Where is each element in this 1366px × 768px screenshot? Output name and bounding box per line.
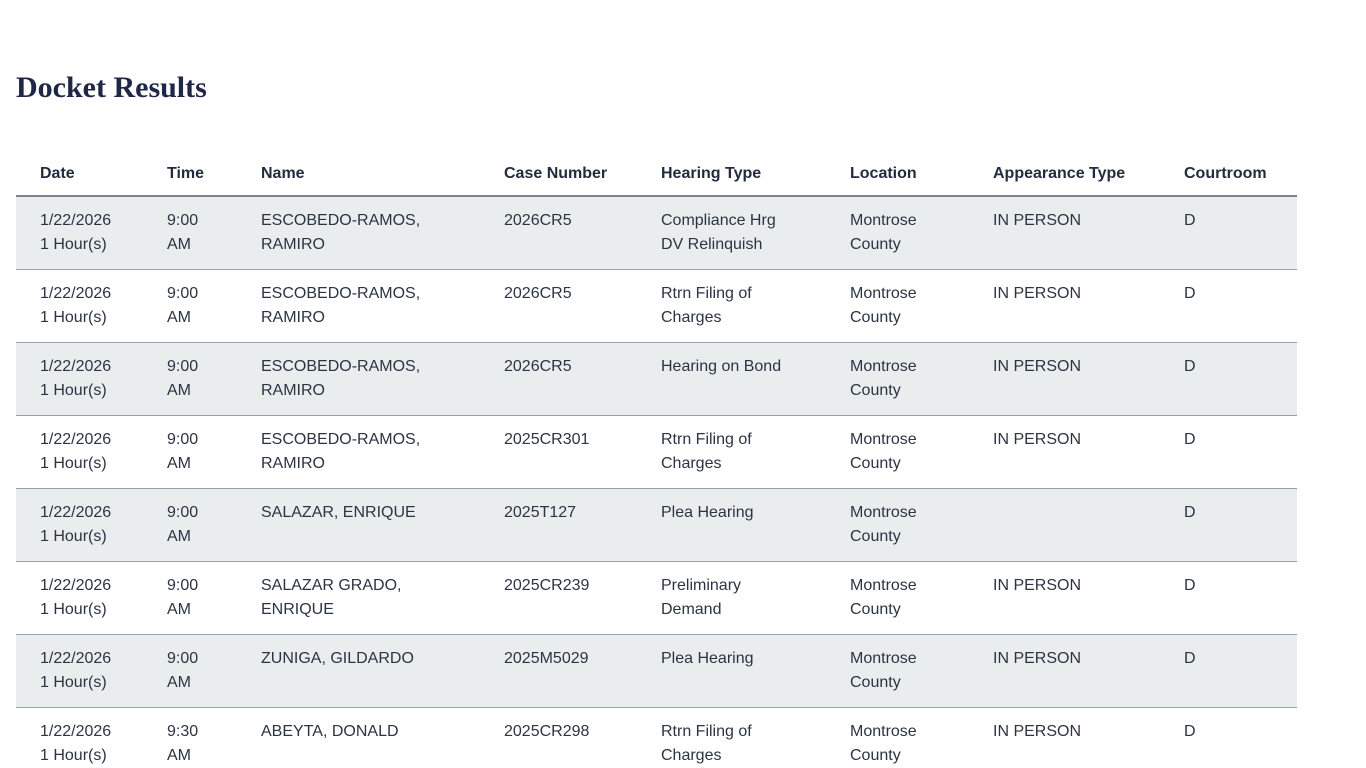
column-header-hearing-type: Hearing Type	[649, 153, 838, 196]
table-row: 1/22/2026 1 Hour(s)9:00 AMSALAZAR GRADO,…	[16, 562, 1297, 635]
cell-name: ESCOBEDO-RAMOS, RAMIRO	[249, 196, 492, 270]
cell-appearance-type: IN PERSON	[981, 708, 1172, 768]
cell-appearance-type: IN PERSON	[981, 416, 1172, 489]
cell-location: Montrose County	[838, 270, 981, 343]
page-container: Docket Results Date Time Name Case Numbe…	[0, 70, 1366, 768]
cell-time: 9:00 AM	[155, 416, 249, 489]
cell-date: 1/22/2026 1 Hour(s)	[16, 416, 155, 489]
cell-hearing-type: Preliminary Demand	[649, 562, 838, 635]
cell-courtroom: D	[1172, 635, 1297, 708]
cell-name: SALAZAR, ENRIQUE	[249, 489, 492, 562]
cell-location: Montrose County	[838, 489, 981, 562]
page-title: Docket Results	[16, 70, 1350, 106]
table-row: 1/22/2026 1 Hour(s)9:00 AMZUNIGA, GILDAR…	[16, 635, 1297, 708]
table-row: 1/22/2026 1 Hour(s)9:00 AMESCOBEDO-RAMOS…	[16, 416, 1297, 489]
cell-time: 9:30 AM	[155, 708, 249, 768]
cell-date: 1/22/2026 1 Hour(s)	[16, 708, 155, 768]
table-row: 1/22/2026 1 Hour(s)9:00 AMESCOBEDO-RAMOS…	[16, 270, 1297, 343]
cell-location: Montrose County	[838, 416, 981, 489]
cell-name: ESCOBEDO-RAMOS, RAMIRO	[249, 343, 492, 416]
column-header-time: Time	[155, 153, 249, 196]
cell-courtroom: D	[1172, 708, 1297, 768]
cell-time: 9:00 AM	[155, 562, 249, 635]
column-header-date: Date	[16, 153, 155, 196]
cell-location: Montrose County	[838, 635, 981, 708]
cell-case-number: 2025CR298	[492, 708, 649, 768]
column-header-appearance-type: Appearance Type	[981, 153, 1172, 196]
table-body: 1/22/2026 1 Hour(s)9:00 AMESCOBEDO-RAMOS…	[16, 196, 1297, 768]
cell-courtroom: D	[1172, 343, 1297, 416]
cell-time: 9:00 AM	[155, 196, 249, 270]
cell-appearance-type: IN PERSON	[981, 196, 1172, 270]
cell-appearance-type: IN PERSON	[981, 562, 1172, 635]
table-header-row: Date Time Name Case Number Hearing Type …	[16, 153, 1297, 196]
cell-date: 1/22/2026 1 Hour(s)	[16, 343, 155, 416]
cell-name: ZUNIGA, GILDARDO	[249, 635, 492, 708]
cell-case-number: 2025CR239	[492, 562, 649, 635]
table-row: 1/22/2026 1 Hour(s)9:00 AMESCOBEDO-RAMOS…	[16, 343, 1297, 416]
cell-appearance-type: IN PERSON	[981, 270, 1172, 343]
cell-case-number: 2026CR5	[492, 343, 649, 416]
cell-date: 1/22/2026 1 Hour(s)	[16, 562, 155, 635]
cell-hearing-type: Plea Hearing	[649, 635, 838, 708]
cell-courtroom: D	[1172, 196, 1297, 270]
cell-time: 9:00 AM	[155, 270, 249, 343]
cell-courtroom: D	[1172, 489, 1297, 562]
column-header-courtroom: Courtroom	[1172, 153, 1297, 196]
column-header-name: Name	[249, 153, 492, 196]
cell-date: 1/22/2026 1 Hour(s)	[16, 635, 155, 708]
cell-appearance-type: IN PERSON	[981, 343, 1172, 416]
cell-appearance-type: IN PERSON	[981, 635, 1172, 708]
table-row: 1/22/2026 1 Hour(s)9:00 AMSALAZAR, ENRIQ…	[16, 489, 1297, 562]
cell-hearing-type: Rtrn Filing of Charges	[649, 270, 838, 343]
cell-date: 1/22/2026 1 Hour(s)	[16, 270, 155, 343]
cell-courtroom: D	[1172, 416, 1297, 489]
cell-location: Montrose County	[838, 562, 981, 635]
table-row: 1/22/2026 1 Hour(s)9:00 AMESCOBEDO-RAMOS…	[16, 196, 1297, 270]
cell-time: 9:00 AM	[155, 489, 249, 562]
cell-hearing-type: Plea Hearing	[649, 489, 838, 562]
cell-time: 9:00 AM	[155, 635, 249, 708]
cell-appearance-type	[981, 489, 1172, 562]
table-row: 1/22/2026 1 Hour(s)9:30 AMABEYTA, DONALD…	[16, 708, 1297, 768]
cell-courtroom: D	[1172, 562, 1297, 635]
cell-hearing-type: Hearing on Bond	[649, 343, 838, 416]
cell-hearing-type: Rtrn Filing of Charges	[649, 416, 838, 489]
column-header-location: Location	[838, 153, 981, 196]
cell-courtroom: D	[1172, 270, 1297, 343]
cell-hearing-type: Compliance Hrg DV Relinquish	[649, 196, 838, 270]
cell-name: ESCOBEDO-RAMOS, RAMIRO	[249, 270, 492, 343]
cell-case-number: 2026CR5	[492, 196, 649, 270]
cell-name: ESCOBEDO-RAMOS, RAMIRO	[249, 416, 492, 489]
docket-results-table: Date Time Name Case Number Hearing Type …	[16, 153, 1297, 768]
column-header-case-number: Case Number	[492, 153, 649, 196]
cell-time: 9:00 AM	[155, 343, 249, 416]
cell-case-number: 2025CR301	[492, 416, 649, 489]
cell-case-number: 2025M5029	[492, 635, 649, 708]
cell-hearing-type: Rtrn Filing of Charges	[649, 708, 838, 768]
cell-name: SALAZAR GRADO, ENRIQUE	[249, 562, 492, 635]
cell-location: Montrose County	[838, 708, 981, 768]
cell-name: ABEYTA, DONALD	[249, 708, 492, 768]
cell-case-number: 2025T127	[492, 489, 649, 562]
cell-date: 1/22/2026 1 Hour(s)	[16, 489, 155, 562]
cell-case-number: 2026CR5	[492, 270, 649, 343]
cell-location: Montrose County	[838, 196, 981, 270]
cell-date: 1/22/2026 1 Hour(s)	[16, 196, 155, 270]
cell-location: Montrose County	[838, 343, 981, 416]
table-header: Date Time Name Case Number Hearing Type …	[16, 153, 1297, 196]
